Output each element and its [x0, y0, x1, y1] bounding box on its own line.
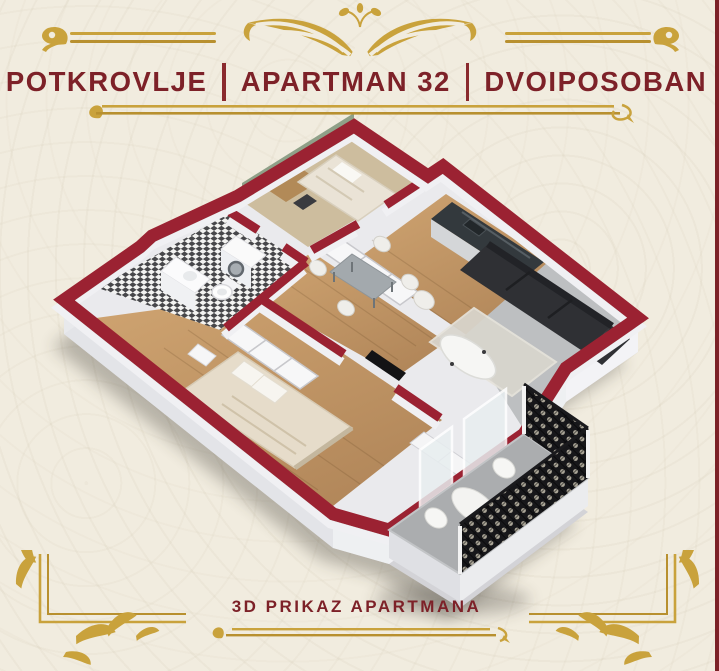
- title-divider: [466, 63, 470, 101]
- page-title: POTKROVLJE APARTMAN 32 DVOIPOSOBAN: [0, 60, 713, 104]
- poster-page: POTKROVLJE APARTMAN 32 DVOIPOSOBAN 3D PR…: [0, 0, 719, 671]
- right-edge-border: [715, 0, 719, 671]
- title-segment-type: DVOIPOSOBAN: [484, 66, 707, 98]
- washer-door: [229, 262, 243, 276]
- title-segment-apartment: APARTMAN 32: [241, 66, 451, 98]
- corner-ornament-left: [10, 550, 190, 668]
- title-underline-rule: [86, 102, 634, 124]
- header-rule-left: [36, 26, 218, 54]
- title-segment-floor: POTKROVLJE: [6, 66, 207, 98]
- header-rule-right: [503, 26, 685, 54]
- caption-underline-rule: [206, 624, 516, 644]
- title-divider: [222, 63, 226, 101]
- sink-basin: [183, 271, 197, 281]
- corner-ornament-right: [525, 550, 705, 668]
- header-flourish: [240, 3, 480, 61]
